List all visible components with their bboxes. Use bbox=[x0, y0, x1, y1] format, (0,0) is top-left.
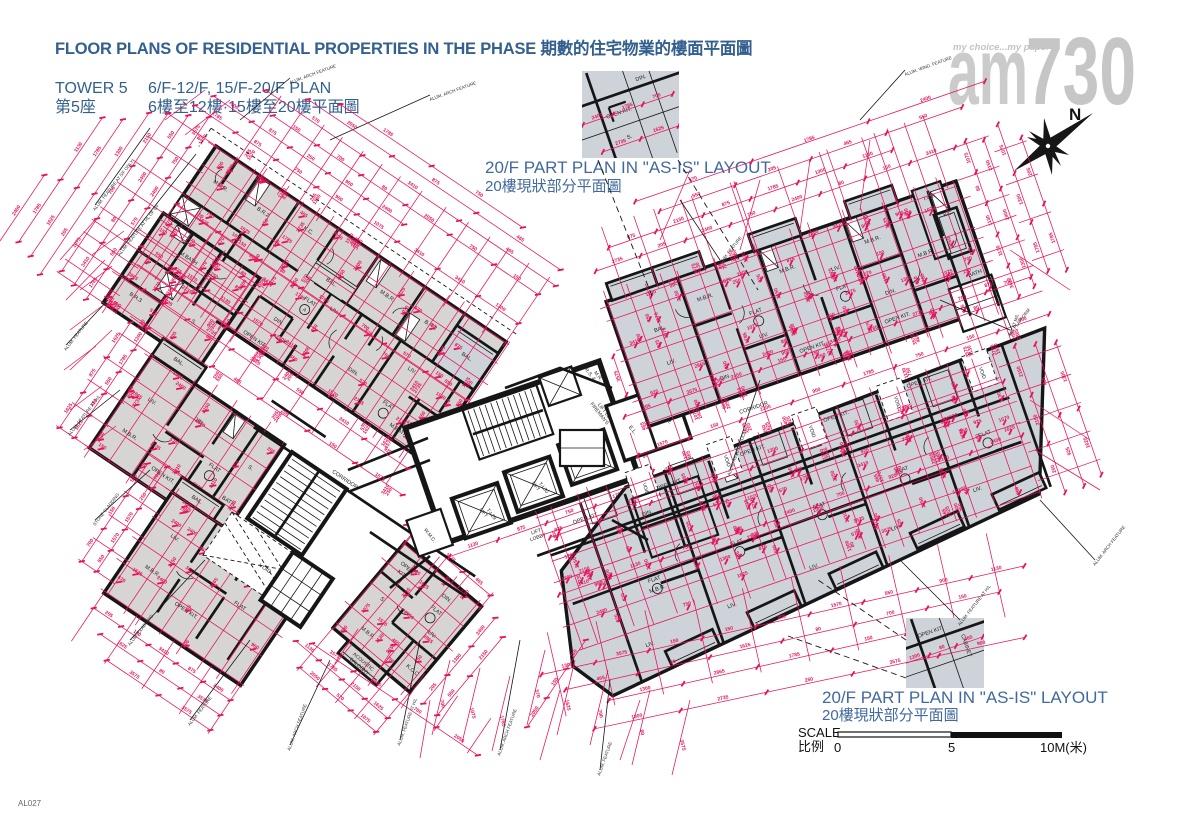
svg-text:AL027: AL027 bbox=[18, 799, 42, 808]
svg-text:10M(米): 10M(米) bbox=[1040, 740, 1087, 755]
svg-text:比例: 比例 bbox=[798, 739, 824, 754]
svg-text:0: 0 bbox=[834, 740, 841, 755]
svg-text:20/F PART PLAN IN "AS-IS" LAYO: 20/F PART PLAN IN "AS-IS" LAYOUT bbox=[485, 158, 771, 177]
svg-text:TOWER 5: TOWER 5 bbox=[55, 80, 128, 97]
svg-text:am: am bbox=[948, 18, 1028, 125]
svg-text:20樓現狀部分平面圖: 20樓現狀部分平面圖 bbox=[485, 178, 622, 195]
svg-text:20樓現狀部分平面圖: 20樓現狀部分平面圖 bbox=[822, 707, 959, 724]
svg-text:5: 5 bbox=[948, 740, 955, 755]
svg-text:第5座: 第5座 bbox=[55, 98, 96, 116]
svg-text:FLOOR PLANS OF RESIDENTIAL PRO: FLOOR PLANS OF RESIDENTIAL PROPERTIES IN… bbox=[55, 38, 752, 58]
svg-text:20/F PART PLAN IN "AS-IS" LAYO: 20/F PART PLAN IN "AS-IS" LAYOUT bbox=[822, 688, 1108, 707]
svg-text:6/F-12/F, 15/F-20/F PLAN: 6/F-12/F, 15/F-20/F PLAN bbox=[148, 80, 331, 97]
svg-text:SCALE: SCALE bbox=[798, 725, 841, 740]
svg-text:N: N bbox=[1069, 105, 1081, 124]
